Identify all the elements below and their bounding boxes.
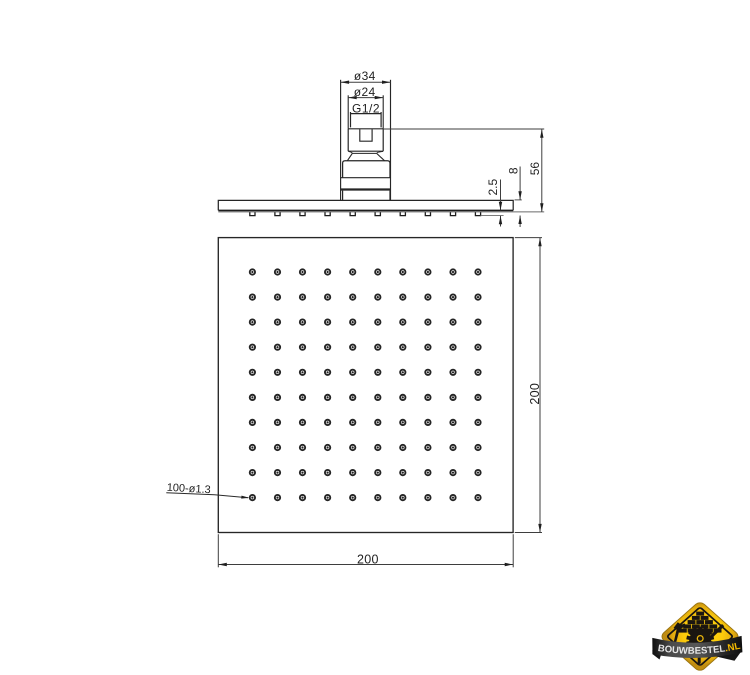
svg-text:2.5: 2.5 — [486, 179, 500, 196]
svg-text:56: 56 — [528, 162, 542, 176]
svg-text:ø34: ø34 — [354, 69, 376, 83]
svg-text:8: 8 — [506, 167, 520, 174]
svg-text:200: 200 — [528, 383, 542, 405]
svg-text:200: 200 — [357, 553, 379, 567]
svg-text:ø24: ø24 — [354, 85, 376, 99]
